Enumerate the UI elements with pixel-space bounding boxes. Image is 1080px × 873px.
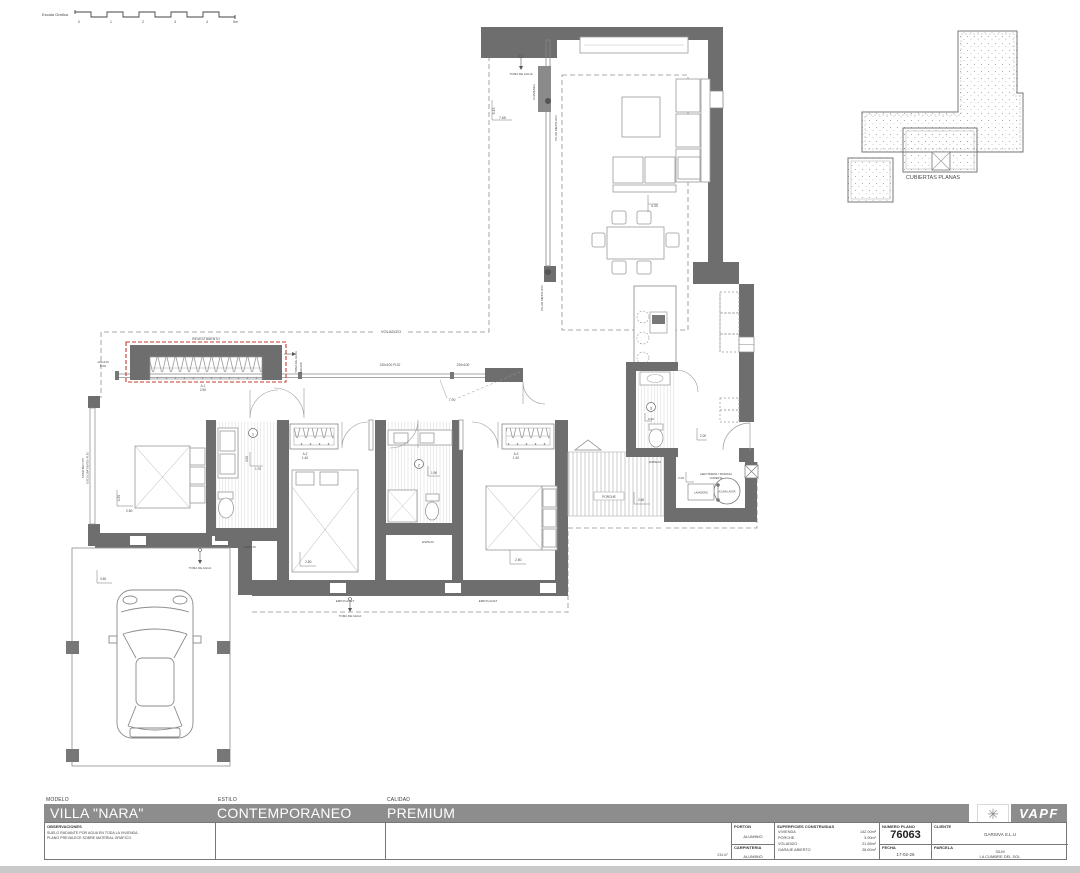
step-marker: [575, 440, 601, 450]
bathroom-1: 1 3.00 1.70 ESPEJO: [206, 388, 304, 549]
master-wardrobe: REVESTIMIENTO A.1 2.90 TOMA DE AGUA 220x…: [126, 337, 303, 392]
numero-plano-cell: NUMERO PLANO 76063 FECHA 17-02-26: [879, 823, 931, 859]
window-spec-label: 220x100 FIJO: [380, 363, 401, 367]
dining-table: [607, 227, 664, 259]
cliente-label: CLIENTE: [934, 824, 951, 829]
scale-tick: 1: [110, 20, 112, 24]
cliente-cell: CLIENTE GARSIVA S.L.U PARCELA 33-M LA CU…: [931, 823, 1068, 859]
dim-label: 1.70: [255, 467, 261, 471]
pillar: [217, 749, 230, 762]
plan-sheet: Escala Gráfica 0 1 2 3 4 5m CUBIERTAS PL…: [0, 0, 1080, 873]
dim-label: 4.30: [651, 204, 658, 208]
vapf-logo-text: VAPF: [1019, 806, 1059, 821]
toma-agua-label: TOMA DE AGUA: [339, 614, 362, 618]
bottom-strip: [0, 866, 1080, 873]
dim-label: 3.00: [245, 456, 249, 462]
chimenea-label: CHIMENEA: [532, 84, 536, 100]
window-spec-label: 220x100: [457, 363, 470, 367]
superficies-label: SUPERFICIES CONSTRUIDAS: [777, 824, 834, 829]
carpinteria-value: ALUMINIO: [732, 854, 774, 859]
sheet-ref: 234.67: [717, 853, 728, 857]
scale-tick: 5m: [233, 20, 238, 24]
door-swing: [274, 388, 304, 418]
roof-plan-inset: CUBIERTAS PLANAS: [848, 31, 1023, 202]
acumulador-label: ACUMULADOR: [718, 491, 735, 494]
calidad-label: CALIDAD: [387, 797, 410, 803]
utility-room: ACUMULADOR LAVADERO AEROTERMIA Y BIOMASA…: [664, 452, 758, 522]
superficie-row: GARAJE ABIERTO26.60m²: [778, 848, 876, 854]
title-band: VILLA "NARA" CONTEMPORANEO PREMIUM: [44, 804, 969, 822]
drain-box: [745, 465, 758, 478]
numero-plano-value: 76063: [880, 829, 931, 841]
master-bed: [135, 446, 205, 508]
window-spec-label: COMP.MET.175: [81, 458, 85, 478]
closet-dim: 1.40: [513, 456, 519, 460]
scale-tick: 2: [142, 20, 144, 24]
closet-dim: 2.90: [200, 388, 206, 392]
scale-tick: 4: [206, 20, 208, 24]
roof-skylight: [932, 152, 950, 170]
toilet: [649, 429, 663, 447]
estilo-value: CONTEMPORANEO: [217, 805, 352, 821]
door-swing: [250, 390, 278, 418]
dim-label: 2.80: [515, 558, 522, 562]
pilar-metalico-label: PILAR METALICO: [540, 285, 544, 311]
kitchen-east-window: [739, 337, 754, 352]
toma-agua-label: TOMA DE AGUA: [294, 351, 298, 373]
instalaciones-label: CUBIERTA: [710, 476, 723, 480]
window-spec-label: FIJO: [100, 364, 107, 368]
toilet: [219, 498, 234, 518]
emplacet-label: EMP.PLACET: [479, 599, 498, 603]
dim-label: 0.90: [648, 417, 654, 421]
dim-label: 3.60: [100, 577, 106, 581]
closet-dim: 1.40: [302, 456, 308, 460]
dim-label: 2.80: [126, 509, 133, 513]
espejo-label: ESPEJO: [649, 460, 662, 464]
washbasin: [640, 372, 670, 385]
parcela-value: LA CUMBRE DEL SOL: [932, 854, 1068, 859]
coffee-table: [622, 97, 660, 137]
car: [109, 590, 201, 738]
scale-bar: Escala Gráfica 0 1 2 3 4 5m: [42, 10, 238, 24]
dim-label: 2.00: [678, 476, 684, 480]
toilet-tank: [426, 494, 439, 501]
pillar: [66, 749, 79, 762]
observaciones-cell: OBSERVACIONES SUELO RADIANTE POR AGUA EN…: [45, 823, 215, 859]
bed-3: [486, 486, 557, 550]
bedroom-2: A.2 1.40 2.80: [277, 420, 373, 583]
modelo-label: MODELO: [46, 797, 69, 803]
estilo-label: ESTILO: [218, 797, 237, 803]
sun-glyph: ✳: [987, 807, 999, 821]
vapf-sun-icon: ✳: [977, 804, 1009, 824]
espejo-label: ESPEJO: [244, 545, 257, 549]
observaciones-label: OBSERVACIONES: [47, 824, 82, 829]
floor-plan-drawing: Escala Gráfica 0 1 2 3 4 5m CUBIERTAS PL…: [0, 0, 1080, 795]
porche-label: PORCHE: [602, 495, 616, 499]
pilar-metalico-icon: [545, 269, 551, 275]
toma-agua-garage: TOMA DE AGUA: [189, 549, 212, 571]
living-dining-wing: CHIMENEA PILAR METALICO PILAR METALICO 6…: [481, 27, 754, 462]
porton-label: PORTON: [734, 824, 751, 829]
scale-bar-label: Escala Gráfica: [42, 12, 69, 17]
door-swing: [472, 422, 498, 448]
window-spec-label: 220x100: [299, 362, 303, 373]
modelo-value: VILLA "NARA": [50, 805, 144, 821]
fecha-value: 17-02-26: [880, 852, 931, 857]
superficies-cell: SUPERFICIES CONSTRUIDAS VIVIENDA142.00m²…: [774, 823, 879, 859]
observaciones-line: PLANO PREVALECE SOBRE MATERIAL GRÁFICO.: [47, 836, 132, 840]
dining-set: [592, 211, 679, 274]
cliente-value: GARSIVA S.L.U: [932, 832, 1068, 837]
vapf-logo: VAPF: [1011, 804, 1067, 822]
espejo-label: ESPEJO: [422, 540, 435, 544]
calidad-value: PREMIUM: [387, 805, 455, 821]
dim-label: 7.90: [449, 398, 456, 402]
dim-label: 1.90: [431, 471, 437, 475]
bathroom-2: 2 1.90 ESPEJO: [375, 420, 463, 580]
living-furniture: [580, 37, 710, 192]
narrow-window: [459, 420, 463, 450]
toilet: [426, 502, 439, 520]
toma-agua-label: TOMA DE AGUA: [509, 72, 533, 76]
empty-cell: [215, 823, 385, 859]
narrow-window: [369, 420, 373, 450]
porton-value: ALUMINIO: [732, 834, 774, 839]
fireplace: [538, 66, 551, 112]
door-swing: [676, 370, 698, 392]
revestimiento-label: REVESTIMIENTO: [192, 337, 220, 341]
pillar: [217, 641, 230, 654]
dim-label: 6.45: [492, 108, 496, 115]
roof-plan-label: CUBIERTAS PLANAS: [906, 175, 961, 181]
door-swing: [342, 422, 368, 448]
pilar-metalico-icon: [545, 98, 551, 104]
closet-hangers: [506, 428, 550, 445]
fecha-label: FECHA: [882, 845, 896, 850]
bedroom-3: A.3 1.40 2.80: [459, 420, 568, 596]
dim-label: 4.20: [117, 495, 121, 502]
dim-label: 2.80: [305, 560, 312, 564]
kitchen-cabinets: [720, 292, 739, 422]
lavadero-label: LAVADERO: [694, 491, 708, 495]
dim-label: 2.00: [700, 434, 706, 438]
observaciones-line: SUELO RADIANTE POR AGUA EN TODA LA VIVIE…: [47, 831, 139, 835]
toma-agua-label: TOMA DE AGUA: [189, 566, 212, 570]
closet-hangers: [294, 428, 334, 445]
dim-label: 7.65: [499, 116, 506, 120]
master-west-window: [90, 408, 95, 524]
instalaciones-label: AEROTERMIA Y BIOMASA: [700, 472, 732, 476]
title-block-table: OBSERVACIONES SUELO RADIANTE POR AGUA EN…: [44, 822, 1067, 860]
aseo: 3 0.90 ESPEJO: [626, 362, 698, 464]
scale-tick: 0: [78, 20, 80, 24]
pillar: [66, 641, 79, 654]
pilar-metalico-label: PILAR METALICO: [554, 115, 558, 141]
garage: 3.60 TOMA DE AGUA: [66, 548, 230, 766]
window-spec-label: OSCILOBATIENTE+FIJO: [86, 451, 90, 484]
dim-label: 2.60: [638, 498, 644, 502]
porton-cell: PORTON ALUMINIO CARPINTERIA ALUMINIO: [731, 823, 774, 859]
scale-tick: 3: [174, 20, 176, 24]
entrance-door-swing: [723, 423, 750, 450]
carpinteria-label: CARPINTERIA: [734, 845, 761, 850]
door-swing: [523, 382, 545, 404]
empty-cell: 234.67: [385, 823, 731, 859]
bed-2: [292, 470, 358, 572]
voladizo-label: VOLADIZO: [381, 329, 401, 334]
